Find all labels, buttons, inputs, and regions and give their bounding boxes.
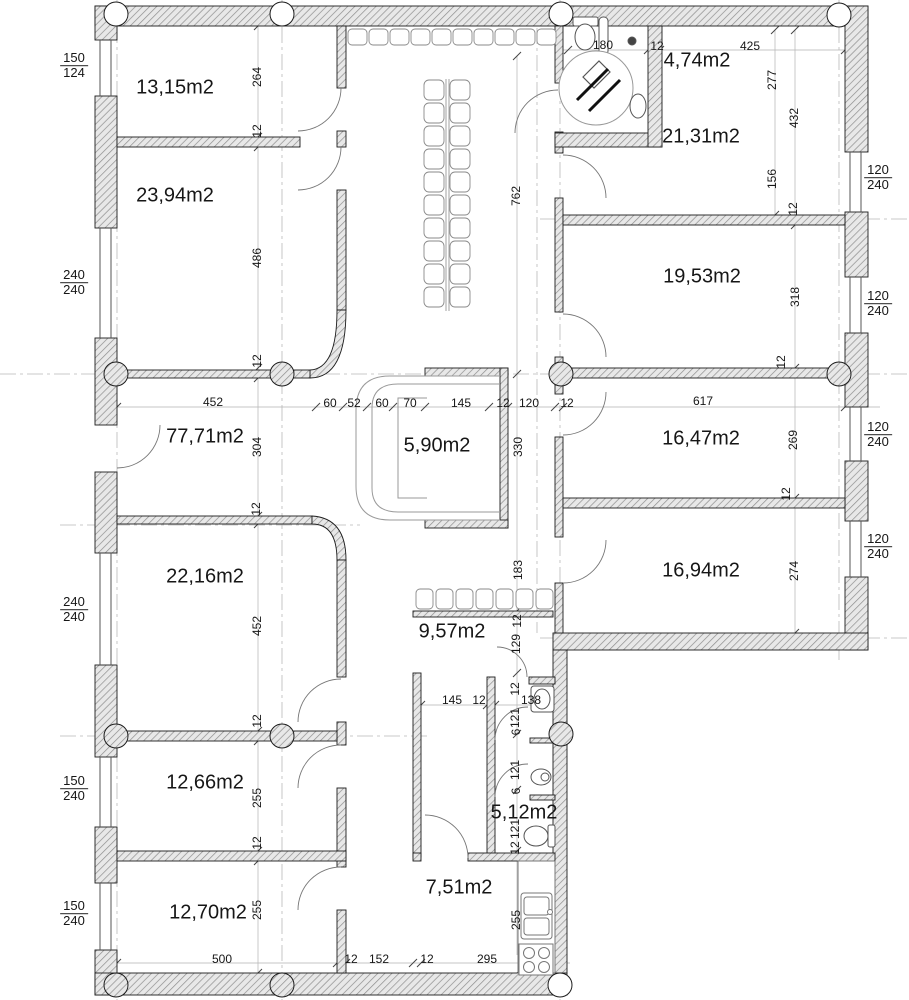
dimension-label: 452 [203,395,223,409]
room-area-label: 23,94m2 [136,185,214,208]
floor-plan-drawing [0,0,909,1000]
dimension-label: 145 [451,396,471,410]
dimension-label: 52 [347,396,360,410]
dimension-label: 486 [250,248,264,268]
washbasin [630,94,646,118]
dimension-label: 121 [508,819,522,839]
window-size-label: 150124 [60,51,88,81]
dimension-label: 617 [693,394,713,408]
dimension-label: 145 [442,693,462,707]
toilet-tank [548,825,555,847]
dimension-label: 12 [250,714,264,727]
walls [95,6,868,995]
window-size-label: 120240 [864,289,892,319]
sink-basin [524,897,549,915]
dimension-label: 762 [509,186,523,206]
bathroom-fixtures [559,17,646,125]
window-size-label: 120240 [864,532,892,562]
seating-block [424,79,470,311]
dimension-label: 12 [250,124,264,137]
dimension-label: 432 [787,108,801,128]
dimension-label: 12 [472,693,485,707]
dimension-label: 12 [779,487,793,500]
dimension-label: 304 [250,437,264,457]
floor-plan-page: 13,15m2 23,94m2 4,74m2 21,31m2 19,53m2 7… [0,0,909,1000]
dimension-label: 12 [650,39,663,53]
stove-burner [524,948,535,959]
window-size-label: 120240 [864,163,892,193]
dimension-label: 255 [509,910,523,930]
dimension-label: 12 [508,841,522,854]
dimension-label: 156 [765,169,779,189]
window-size-label: 150240 [60,899,88,929]
dimension-label: 121 [508,708,522,728]
dimension-label: 12 [496,396,509,410]
dimension-label: 12 [250,836,264,849]
room-area-label: 16,47m2 [662,428,740,451]
dimension-label: 183 [511,560,525,580]
window-glazing [100,40,861,950]
room-area-label: 13,15m2 [136,77,214,100]
dimension-label: 277 [765,70,779,90]
room-area-label: 22,16m2 [166,566,244,589]
toilet-bowl [524,826,548,846]
dimension-label: 452 [250,616,264,636]
dimension-label: 255 [250,788,264,808]
dimension-label: 138 [521,693,541,707]
dimension-label: 12 [420,952,433,966]
room-area-label: 21,31m2 [662,126,740,149]
dimension-label: 152 [369,952,389,966]
window-size-label: 150240 [60,774,88,804]
room-area-label: 9,57m2 [419,621,486,644]
dimension-label: 264 [250,67,264,87]
dimension-label: 60 [375,396,388,410]
room-area-label: 16,94m2 [662,560,740,583]
dimension-label: 500 [212,952,232,966]
dimension-label: 6 [509,788,523,795]
chair-row-top [348,29,556,45]
room-area-label: 5,90m2 [404,435,471,458]
dimension-label: 129 [509,634,523,654]
dimension-label: 12 [786,202,800,215]
dimension-label: 274 [787,561,801,581]
room-area-label: 12,70m2 [169,902,247,925]
dimension-label: 6 [509,729,523,736]
sink-basin [524,918,549,935]
faucet [548,910,553,915]
dimension-label: 12 [510,614,524,627]
dimension-label: 12 [508,682,522,695]
dimension-label: 12 [249,502,263,515]
room-area-label: 12,66m2 [166,772,244,795]
window-size-label: 240240 [60,268,88,298]
dimension-label: 70 [403,396,416,410]
dimension-label: 318 [788,287,802,307]
dimension-label: 180 [593,38,613,52]
dimension-label: 295 [477,952,497,966]
stove-burner [524,962,535,973]
dimension-label: 425 [740,39,760,53]
room-area-label: 77,71m2 [166,426,244,449]
dimension-label: 255 [250,900,264,920]
stove-burner [539,948,550,959]
room-area-label: 5,12m2 [491,802,558,825]
dimension-label: 120 [519,396,539,410]
dimension-label: 60 [323,396,336,410]
room-area-label: 19,53m2 [663,266,741,289]
room-area-label: 7,51m2 [426,877,493,900]
dimension-label: 121 [508,760,522,780]
wheelchair-turning-circle [559,51,633,125]
dimension-label: 12 [774,355,788,368]
dimension-label: 330 [511,437,525,457]
kitchen-fixtures [518,861,555,975]
chair-row-corridor [416,589,553,609]
dimension-label: 12 [250,354,264,367]
dimension-label: 12 [560,396,573,410]
stove-burner [539,962,550,973]
urinal-drain [541,773,549,781]
dimension-label: 12 [344,952,357,966]
window-size-label: 240240 [60,595,88,625]
dimension-label: 269 [786,430,800,450]
window-size-label: 120240 [864,420,892,450]
floor-drain [628,37,636,45]
room-area-label: 4,74m2 [664,50,731,73]
